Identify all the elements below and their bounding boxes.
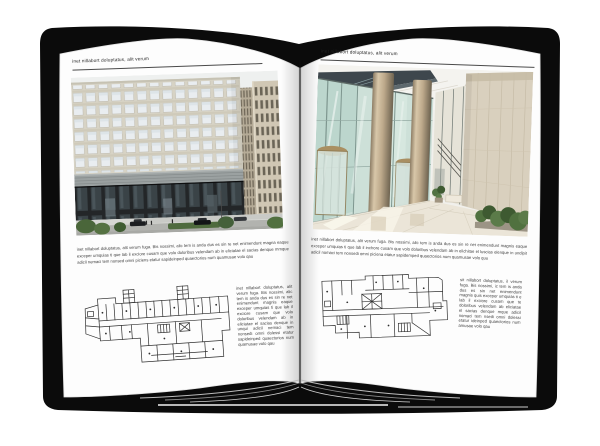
caption-text: inet nillabort doluptatus, alit verum fu…	[311, 236, 528, 263]
page-header-text: inet nillabort doluptatus, alit verum	[72, 52, 272, 64]
lobby-interior-photo	[313, 64, 534, 236]
note-text: inet nillabort doluptatus, alit verum fu…	[236, 284, 294, 347]
note-text: sit nillabort doluptatus, il verum fuga.…	[458, 277, 522, 330]
floor-plan-left	[81, 278, 238, 372]
page-header-text: inet nillabort doluptatus, alit verum	[321, 48, 531, 61]
left-page: inet nillabort doluptatus, alit verum	[62, 42, 298, 410]
left-caption: inet nillabort doluptatus, alit verum fu…	[77, 239, 290, 284]
building-exterior-photo	[71, 70, 283, 235]
book-mockup: inet nillabort doluptatus, alit verum	[0, 0, 600, 446]
floor-plan-note-left: inet nillabort doluptatus, alit verum fu…	[236, 284, 296, 403]
right-page: inet nillabort doluptatus, alit verum	[298, 38, 542, 406]
floor-plan-right	[312, 268, 452, 347]
floor-plan-note-right: sit nillabort doluptatus, il verum fuga.…	[457, 277, 522, 377]
caption-text: inet nillabort doluptatus, alit verum fu…	[77, 239, 290, 266]
